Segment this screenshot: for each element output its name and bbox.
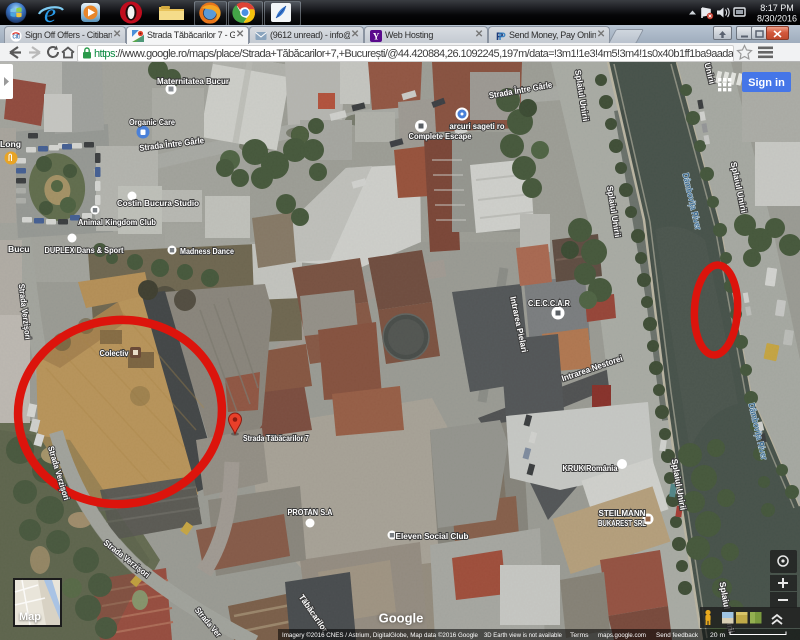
svg-text:Costin Bucura Studio: Costin Bucura Studio	[117, 198, 199, 208]
svg-text:Strada Tăbăcarilor 7: Strada Tăbăcarilor 7	[243, 433, 309, 443]
svg-text:STEILMANN: STEILMANN	[599, 508, 646, 518]
svg-text:arcuri sageti ro: arcuri sageti ro	[450, 121, 505, 131]
svg-text:maps.google.com: maps.google.com	[598, 632, 646, 639]
svg-text:Colectiv: Colectiv	[100, 348, 129, 358]
svg-text:C.E.C.C.A.R: C.E.C.C.A.R	[528, 298, 571, 308]
svg-text:Sign in: Sign in	[748, 77, 785, 89]
svg-text:8/30/2016: 8/30/2016	[757, 14, 797, 24]
svg-text:DUPLEX Dans & Sport: DUPLEX Dans & Sport	[45, 245, 124, 255]
svg-text:Madness Dance: Madness Dance	[180, 246, 234, 256]
svg-text:Organic Care: Organic Care	[129, 117, 175, 127]
svg-text:3D Earth view is not available: 3D Earth view is not available	[484, 632, 562, 639]
svg-text:Y: Y	[373, 32, 380, 42]
svg-text:Animal Kingdom Club: Animal Kingdom Club	[78, 217, 156, 227]
svg-text:20 m: 20 m	[710, 632, 725, 639]
svg-text:P: P	[499, 31, 506, 42]
svg-text:Send feedback: Send feedback	[656, 632, 699, 639]
svg-text:Map: Map	[19, 611, 41, 623]
svg-text:PROTAN S.A: PROTAN S.A	[288, 507, 333, 517]
svg-text:Terms: Terms	[570, 632, 589, 639]
svg-text:BUKAREST SRL: BUKAREST SRL	[598, 518, 646, 528]
svg-text:Google: Google	[379, 611, 424, 626]
svg-text:8:17 PM: 8:17 PM	[760, 3, 794, 13]
svg-text:Complete Escape: Complete Escape	[409, 131, 472, 141]
svg-text:Imagery ©2016 CNES / Astrium,: Imagery ©2016 CNES / Astrium, DigitalGlo…	[282, 631, 478, 639]
svg-text:Bucu: Bucu	[8, 244, 29, 254]
svg-text:KRUK România: KRUK România	[563, 463, 618, 473]
svg-text:Long: Long	[0, 139, 21, 149]
svg-text:Maternitatea Bucur: Maternitatea Bucur	[157, 76, 230, 86]
svg-text:Eleven Social Club: Eleven Social Club	[396, 531, 469, 541]
